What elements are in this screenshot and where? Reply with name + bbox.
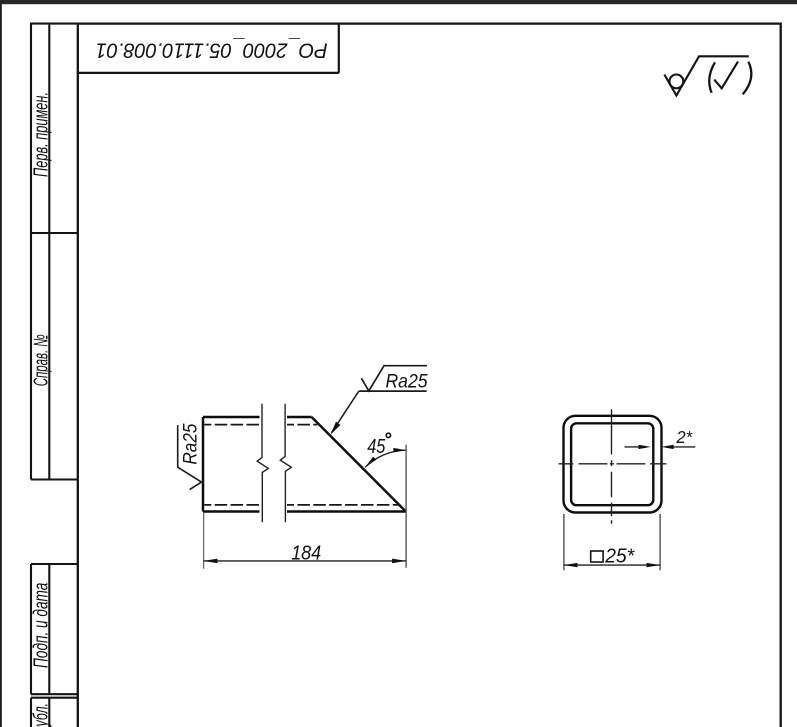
svg-text:Инв. № дубл.: Инв. № дубл.	[30, 703, 52, 727]
svg-text:РО_2000_05.1110.008.01: РО_2000_05.1110.008.01	[96, 36, 328, 63]
svg-text:Ra25: Ra25	[386, 371, 429, 393]
svg-text:Ra25: Ra25	[179, 423, 201, 465]
svg-text:Подп. и дата: Подп. и дата	[30, 583, 52, 668]
svg-text:Перв. примен.: Перв. примен.	[30, 92, 52, 177]
svg-text:25*: 25*	[604, 545, 635, 568]
svg-text:Справ. №: Справ. №	[30, 334, 52, 386]
svg-text:184: 184	[291, 541, 321, 564]
svg-text:2*: 2*	[675, 427, 693, 447]
svg-text:45: 45	[367, 436, 386, 458]
